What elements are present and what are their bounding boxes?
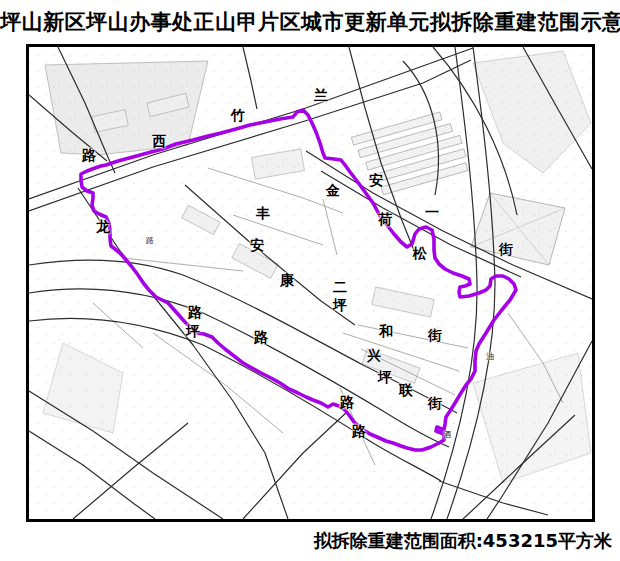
- street-label: 街: [499, 242, 513, 256]
- street-label: 路: [82, 148, 96, 162]
- street-label: 路: [254, 330, 268, 344]
- street-label: 和: [379, 324, 393, 338]
- street-label: 西: [152, 134, 166, 148]
- street-label: 路: [188, 305, 202, 319]
- street-label: 安: [369, 173, 383, 187]
- street-label: 荷: [378, 212, 392, 226]
- street-label: 一: [425, 205, 439, 219]
- street-label: 坪: [378, 370, 392, 384]
- small-street-label: 路: [146, 237, 154, 245]
- street-label: 二: [333, 280, 347, 294]
- street-label: 坪: [186, 324, 200, 338]
- street-label: 路: [352, 424, 366, 438]
- street-label: 松: [413, 246, 427, 260]
- small-street-label: 油: [486, 353, 494, 361]
- page-title: 坪山新区坪山办事处正山甲片区城市更新单元拟拆除重建范围示意图: [0, 8, 620, 36]
- street-label: 竹: [231, 108, 245, 122]
- map-canvas: 竹西路兰龙丰金安荷一安康松街二坪路坪路和街兴坪联街路路路油酒: [26, 44, 595, 522]
- small-street-label: 酒: [443, 431, 451, 439]
- street-label: 路: [340, 395, 354, 409]
- street-label: 兴: [367, 348, 381, 362]
- area-caption: 拟拆除重建范围面积:453215平方米: [0, 529, 612, 553]
- street-label: 兰: [314, 88, 328, 102]
- street-label: 安: [250, 238, 264, 252]
- street-label: 坪: [333, 298, 347, 312]
- street-label: 金: [326, 183, 340, 197]
- street-label: 康: [280, 273, 294, 287]
- street-label: 街: [428, 328, 442, 342]
- street-label: 联: [399, 383, 413, 397]
- street-labels: 竹西路兰龙丰金安荷一安康松街二坪路坪路和街兴坪联街路路路油酒: [29, 47, 592, 519]
- street-label: 丰: [256, 206, 270, 220]
- street-label: 龙: [96, 219, 110, 233]
- street-label: 街: [428, 396, 442, 410]
